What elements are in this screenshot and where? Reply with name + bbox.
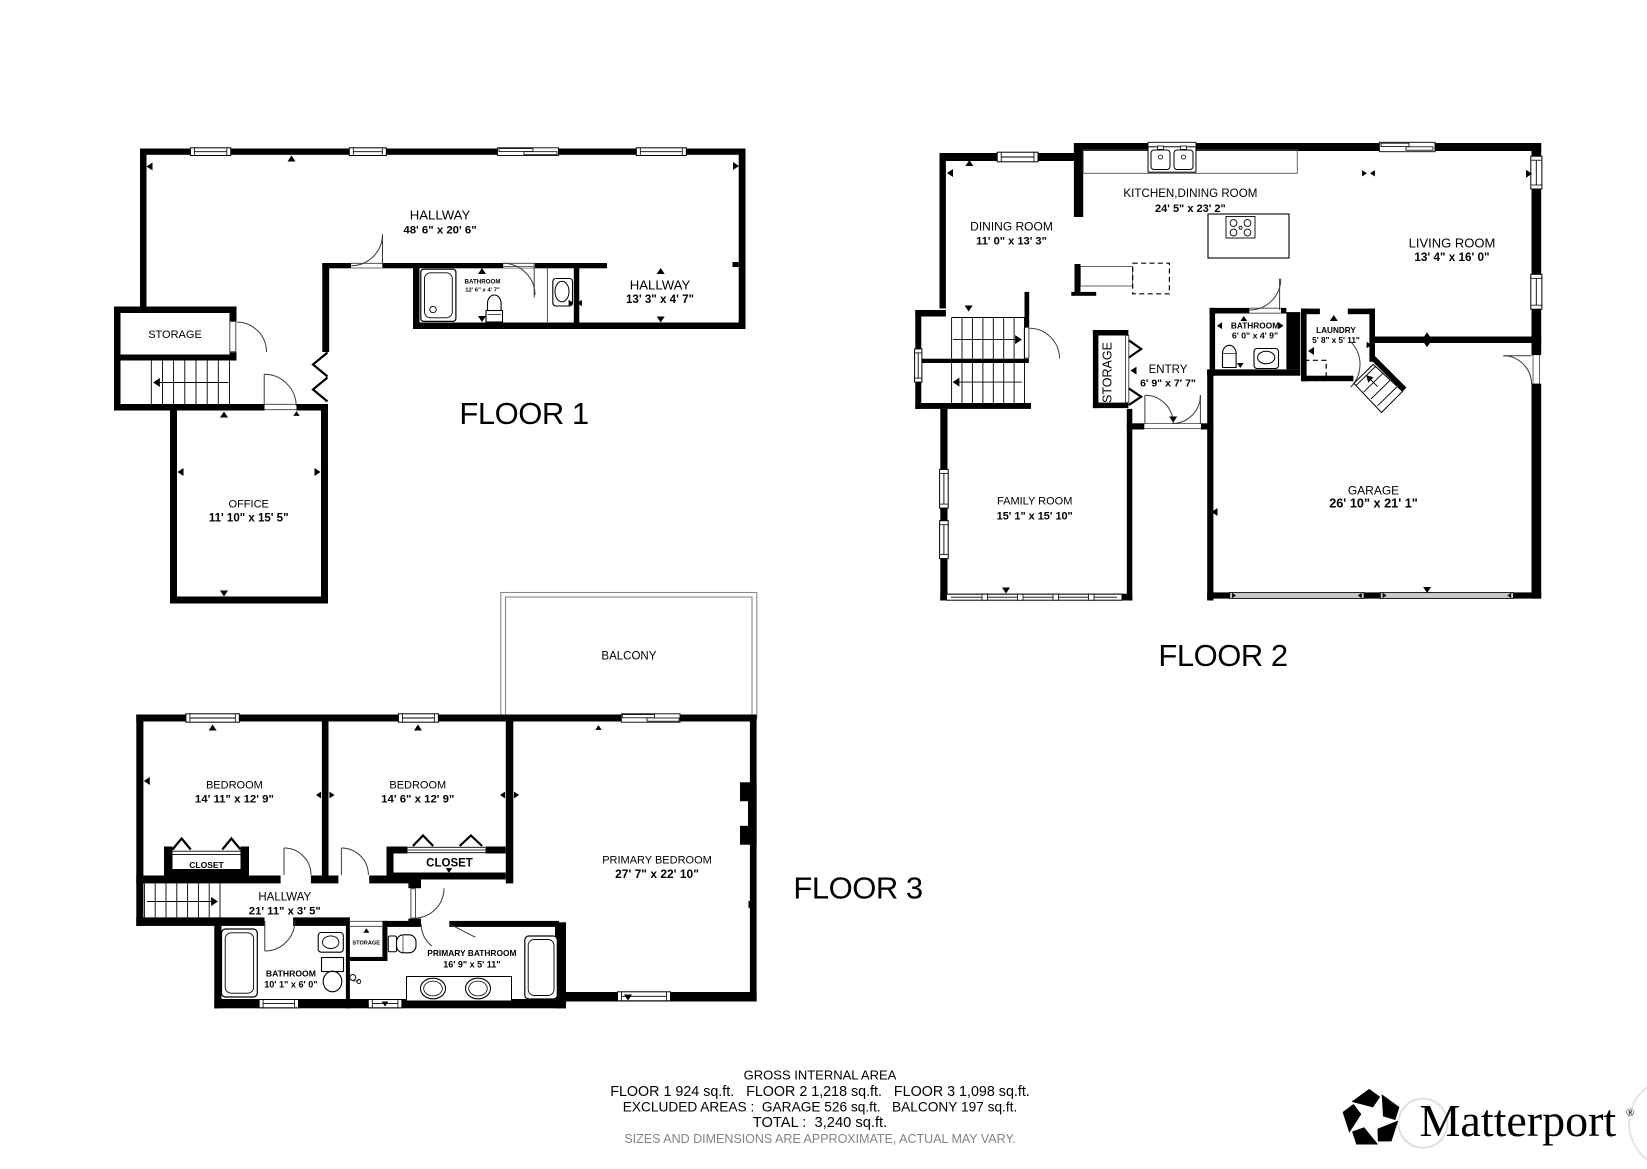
svg-text:STORAGE: STORAGE [148, 329, 202, 341]
svg-text:10' 1" x 6' 0": 10' 1" x 6' 0" [264, 979, 317, 989]
svg-text:11' 10" x 15' 5": 11' 10" x 15' 5" [209, 513, 289, 525]
svg-text:16' 9" x 5' 11": 16' 9" x 5' 11" [443, 960, 500, 970]
svg-text:GARAGE: GARAGE [1348, 483, 1399, 497]
svg-text:TOTAL : 3,240 sq.ft.: TOTAL : 3,240 sq.ft. [753, 1115, 887, 1131]
svg-text:5' 8" x 5' 11": 5' 8" x 5' 11" [1312, 336, 1360, 345]
svg-text:LAUNDRY: LAUNDRY [1316, 326, 1356, 335]
svg-text:15' 1" x 15' 10": 15' 1" x 15' 10" [997, 510, 1073, 522]
svg-text:Matterport: Matterport [1420, 1095, 1617, 1146]
svg-text:24' 5" x 23' 2": 24' 5" x 23' 2" [1155, 203, 1226, 215]
svg-text:14' 11" x 12' 9": 14' 11" x 12' 9" [195, 794, 274, 806]
svg-text:21' 11" x 3' 5": 21' 11" x 3' 5" [249, 906, 321, 918]
svg-text:BATHROOM: BATHROOM [1231, 321, 1279, 331]
svg-text:LIVING ROOM: LIVING ROOM [1409, 236, 1496, 251]
svg-text:6' 9" x 7' 7": 6' 9" x 7' 7" [1140, 377, 1196, 389]
svg-text:ENTRY: ENTRY [1149, 364, 1188, 376]
svg-text:14' 6" x 12' 9": 14' 6" x 12' 9" [381, 794, 454, 806]
svg-text:26' 10" x 21' 1": 26' 10" x 21' 1" [1329, 497, 1418, 511]
svg-text:FLOOR 1: FLOOR 1 [459, 396, 588, 431]
svg-text:EXCLUDED AREAS : GARAGE 526 s: EXCLUDED AREAS : GARAGE 526 sq.ft. BALCO… [623, 1100, 1018, 1115]
svg-text:FLOOR 3: FLOOR 3 [793, 871, 922, 906]
svg-text:13' 4" x 16' 0": 13' 4" x 16' 0" [1414, 251, 1489, 264]
svg-text:BATHROOM: BATHROOM [465, 279, 501, 286]
svg-text:PRIMARY BATHROOM: PRIMARY BATHROOM [427, 948, 516, 958]
svg-text:GROSS INTERNAL AREA: GROSS INTERNAL AREA [744, 1068, 897, 1083]
svg-text:KITCHEN,DINING ROOM: KITCHEN,DINING ROOM [1123, 187, 1257, 200]
svg-text:®: ® [1626, 1107, 1634, 1119]
svg-text:HALLWAY: HALLWAY [258, 892, 311, 904]
svg-text:HALLWAY: HALLWAY [410, 207, 471, 222]
svg-text:OFFICE: OFFICE [229, 499, 269, 511]
svg-text:CLOSET: CLOSET [189, 860, 224, 870]
svg-text:48' 6" x 20' 6": 48' 6" x 20' 6" [403, 225, 476, 237]
svg-text:BALCONY: BALCONY [601, 651, 656, 663]
svg-text:BEDROOM: BEDROOM [206, 780, 263, 792]
svg-text:CLOSET: CLOSET [426, 858, 473, 870]
svg-text:12' 6" x 4' 7": 12' 6" x 4' 7" [465, 287, 500, 293]
svg-text:STORAGE: STORAGE [1100, 342, 1114, 403]
svg-text:6' 0" x 4' 9": 6' 0" x 4' 9" [1232, 330, 1278, 340]
svg-text:11' 0" x 13' 3": 11' 0" x 13' 3" [976, 236, 1047, 248]
svg-text:DINING ROOM: DINING ROOM [970, 219, 1053, 233]
svg-text:HALLWAY: HALLWAY [630, 277, 691, 292]
svg-text:BEDROOM: BEDROOM [389, 780, 446, 792]
svg-text:FLOOR 2: FLOOR 2 [1158, 638, 1287, 673]
svg-text:FAMILY ROOM: FAMILY ROOM [997, 496, 1072, 508]
svg-text:PRIMARY BEDROOM: PRIMARY BEDROOM [602, 855, 712, 867]
svg-text:27' 7" x 22' 10": 27' 7" x 22' 10" [615, 867, 699, 881]
svg-text:BATHROOM: BATHROOM [266, 969, 316, 979]
svg-text:FLOOR 1 924 sq.ft. FLOOR 2 1: FLOOR 1 924 sq.ft. FLOOR 2 1,218 sq.ft. … [610, 1084, 1030, 1100]
svg-text:SIZES AND DIMENSIONS ARE APPRO: SIZES AND DIMENSIONS ARE APPROXIMATE, AC… [624, 1132, 1015, 1146]
svg-text:13' 3" x 4' 7": 13' 3" x 4' 7" [626, 293, 694, 306]
svg-text:STORAGE: STORAGE [352, 941, 380, 947]
